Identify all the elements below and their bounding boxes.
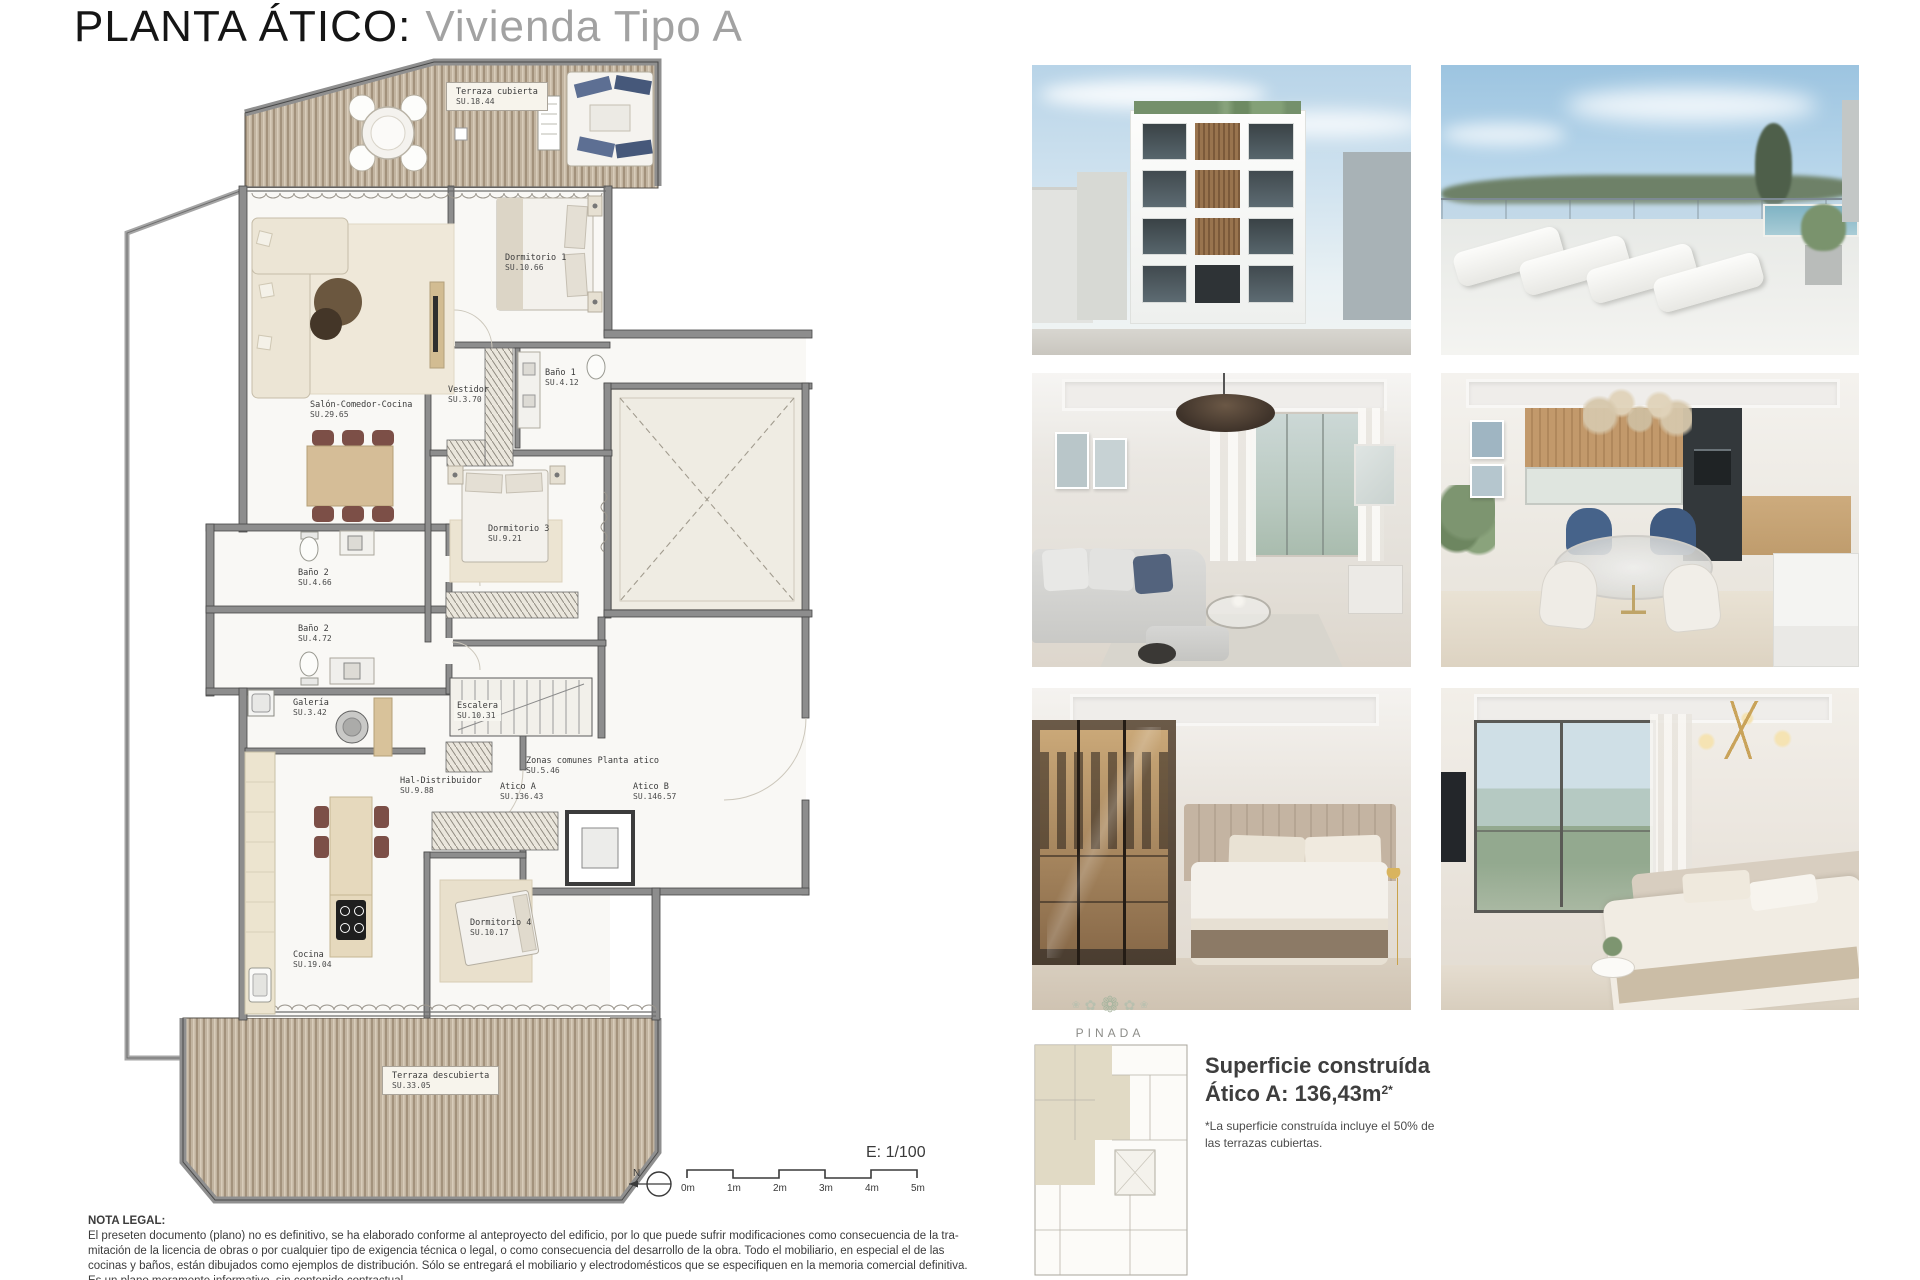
photo-living-room [1032, 373, 1411, 667]
room-label-cocina: Cocina SU.19.04 [293, 950, 332, 969]
room-label-dormitorio-4: Dormitorio 4 SU.10.17 [470, 918, 531, 937]
room-label-galeria: Galería SU.3.42 [293, 698, 329, 717]
wood-slat-panel [1195, 123, 1240, 160]
balustrade-line [1474, 830, 1650, 832]
surface-heading: Superficie construída Ático A: 136,43m2* [1205, 1052, 1430, 1107]
kitchen-counter [1742, 496, 1851, 555]
sofa-cushion [1042, 548, 1090, 592]
window [1248, 265, 1293, 302]
sofa-cushion [1088, 548, 1136, 591]
glass-reflection [1047, 727, 1161, 959]
roof-plants [1134, 101, 1301, 114]
flowers [1229, 594, 1248, 609]
window [1142, 265, 1187, 302]
legal-line: El preseten documento (plano) no es defi… [88, 1229, 968, 1244]
scale-tick-2m: 2m [773, 1183, 787, 1194]
window [1142, 170, 1187, 207]
photo-rooftop-terrace [1441, 65, 1859, 355]
bed-throw [1191, 930, 1388, 959]
window [1248, 170, 1293, 207]
scale-tick-0m: 0m [681, 1183, 695, 1194]
gold-chandelier [1683, 701, 1800, 759]
terraza-descubierta-deck [183, 1018, 658, 1200]
table-gold-base [1621, 585, 1646, 614]
side-table-dark [1138, 643, 1176, 664]
superscript: 2* [1381, 1083, 1392, 1097]
cloud [1566, 88, 1817, 123]
light-shaft [611, 389, 803, 610]
wall-art [1470, 420, 1503, 459]
planter [1805, 245, 1843, 286]
room-label-bano-1: Baño 1 SU.4.12 [545, 368, 579, 387]
plant [1600, 936, 1625, 962]
room-label-dormitorio-1: Dormitorio 1 SU.10.66 [505, 253, 566, 272]
scale-bar [687, 1170, 917, 1178]
surface-heading-line1: Superficie construída [1205, 1052, 1430, 1080]
window [1248, 123, 1293, 160]
room-label-bano-2a: Baño 2 SU.4.66 [298, 568, 332, 587]
legal-line: Es un plano meramente informativo, sin c… [88, 1274, 968, 1280]
lamp-cord [1223, 373, 1225, 397]
wood-slat-panel [1195, 170, 1240, 207]
room-label-salon-comedor-cocina: Salón-Comedor-Cocina SU.29.65 [310, 400, 412, 419]
legal-heading: NOTA LEGAL: [88, 1214, 968, 1229]
brochure-page: PLANTA ÁTICO:Vivienda Tipo A Terraza cub… [0, 0, 1920, 1280]
scale-tick-4m: 4m [865, 1183, 879, 1194]
elevator [567, 812, 633, 884]
window [1248, 218, 1293, 255]
white-dresser [1773, 553, 1859, 667]
surface-footnote: *La superficie construída incluye el 50%… [1205, 1118, 1434, 1153]
scale-tick-3m: 3m [819, 1183, 833, 1194]
window-sea-view [1474, 720, 1656, 913]
legal-note: NOTA LEGAL: El preseten documento (plano… [88, 1214, 968, 1280]
room-label-bano-2b: Baño 2 SU.4.72 [298, 624, 332, 643]
oven [1694, 449, 1732, 484]
north-label: N [633, 1168, 640, 1179]
sideboard [1348, 565, 1403, 614]
window-mullions [1252, 414, 1358, 555]
street [1032, 329, 1411, 355]
entrance-glass [1195, 265, 1240, 302]
wall-art [1470, 464, 1503, 497]
window [1142, 218, 1187, 255]
room-label-escalera: Escalera SU.10.31 [454, 700, 501, 721]
wood-slat-panel [1195, 218, 1240, 255]
bubble-chandelier [1583, 388, 1692, 438]
gold-floor-lamp [1390, 878, 1405, 965]
wall-art [1093, 438, 1127, 489]
room-label-atico-a: Atico A SU.136.43 [500, 782, 543, 801]
cypress-tree [1755, 123, 1793, 204]
room-label-atico-b: Atico B SU.146.57 [633, 782, 676, 801]
sofa-pillow-navy [1133, 554, 1174, 595]
window [1142, 123, 1187, 160]
legal-line: mitación de la licencia de obras o por c… [88, 1244, 968, 1259]
pillow [1683, 869, 1752, 903]
photo-dining-room [1441, 373, 1859, 667]
tv [1441, 772, 1466, 862]
room-label-terraza-descubierta: Terraza descubierta SU.33.05 [382, 1066, 499, 1095]
photo-building-exterior [1032, 65, 1411, 355]
floral-garland-icon: ❀ ✿ ❁ ✿ ❀ [1032, 992, 1188, 1018]
wall-art [1055, 432, 1089, 489]
legal-line: cocinas y baños, están dibujados como ej… [88, 1259, 968, 1274]
wall-column [1842, 100, 1859, 222]
key-plan [1035, 1045, 1187, 1275]
window-band [1525, 467, 1684, 505]
neighbor-building-right [1343, 152, 1411, 320]
pendant-lamp [1176, 394, 1275, 432]
plant [1441, 485, 1495, 585]
room-label-vestidor: Vestidor SU.3.70 [448, 385, 489, 404]
mirror [1354, 444, 1396, 507]
plant [1801, 204, 1847, 250]
surface-heading-line2: Ático A: 136,43m2* [1205, 1080, 1430, 1108]
scale-tick-5m: 5m [911, 1183, 925, 1194]
scale-label: E: 1/100 [866, 1144, 926, 1162]
scale-tick-1m: 1m [727, 1183, 741, 1194]
brand-pinada: PINADA [1032, 1026, 1188, 1040]
photo-bedroom-view [1441, 688, 1859, 1010]
room-label-terraza-cubierta: Terraza cubierta SU.18.44 [446, 82, 548, 111]
neighbor-building-left-2 [1077, 172, 1126, 320]
facade-window-grid [1142, 123, 1294, 303]
photo-bedroom-dressing [1032, 688, 1411, 1010]
room-label-hal-distribuidor: Hal-Distribuidor SU.9.88 [400, 776, 482, 795]
room-label-zonas-comunes: Zonas comunes Planta atico SU.5.46 [526, 756, 659, 775]
room-label-dormitorio-3: Dormitorio 3 SU.9.21 [488, 524, 549, 543]
window-mullion [1560, 720, 1563, 907]
